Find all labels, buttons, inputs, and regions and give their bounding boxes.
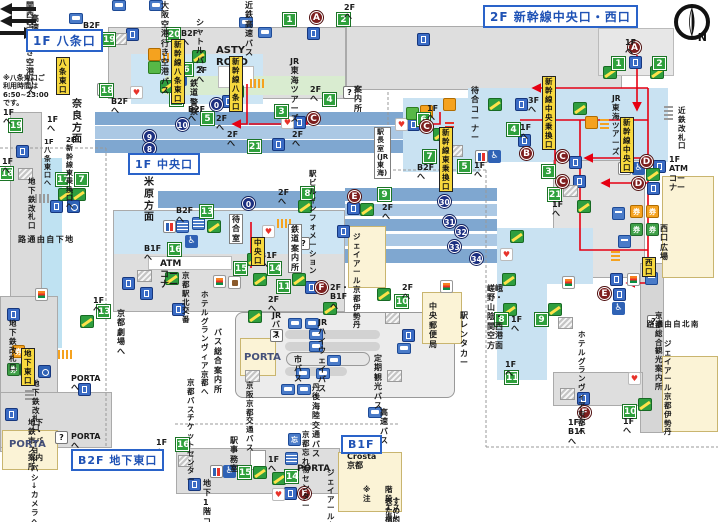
section-title: B1F xyxy=(341,435,382,454)
ticket-o-icon: 券 xyxy=(630,205,643,218)
stair-number-badge: 5 xyxy=(458,160,471,173)
map-label: 1Fへ xyxy=(623,417,634,436)
elevator-letter-badge: D xyxy=(640,155,653,168)
elev-icon xyxy=(347,202,360,215)
map-label: 1Fへ xyxy=(625,38,636,57)
wheelchair-icon: ♿ xyxy=(185,235,198,248)
cafe-icon xyxy=(228,276,241,289)
elevator-letter-badge: C xyxy=(556,175,569,188)
esc-icon xyxy=(248,310,262,323)
stair-number-badge: 18 xyxy=(100,84,113,97)
esc-icon xyxy=(510,230,524,243)
gate-ticks xyxy=(58,350,72,359)
map-label: B2Fへ xyxy=(111,97,128,116)
stair-number-badge: 9 xyxy=(378,188,391,201)
map-label: 駅事務室 xyxy=(230,436,238,474)
map-label: 1Fへ xyxy=(427,104,438,123)
stair-number-badge: 19 xyxy=(102,33,115,46)
stairs-icon xyxy=(558,317,573,329)
stair-number-badge: 1 xyxy=(612,57,625,70)
map-label: JR 東海 ツアーズ xyxy=(290,57,299,123)
bus-icon xyxy=(288,318,302,329)
elevator-letter-badge: E xyxy=(598,287,611,300)
map-label: 2Fへ xyxy=(278,188,289,207)
section-title: 2F 新幹線中央口・西口 xyxy=(483,5,638,28)
gate-ticks xyxy=(664,106,673,120)
stair-number-badge: 4 xyxy=(507,123,520,136)
map-label: 2Fへ xyxy=(216,114,227,133)
bus-icon xyxy=(297,384,311,395)
stair-number-badge: 3 xyxy=(542,165,555,178)
map-label: PORTA xyxy=(9,439,46,451)
bus-icon xyxy=(69,13,83,24)
ticket-g-icon: 券 xyxy=(646,223,659,236)
map-label: ジェイアール 京都伊勢丹 xyxy=(664,340,672,437)
map-label: 1Fへ xyxy=(505,360,516,379)
gate-ticks xyxy=(35,194,49,203)
platform-number-badge: 32 xyxy=(455,225,468,238)
stair-number-badge: 7 xyxy=(423,150,436,163)
elev-icon xyxy=(307,27,320,40)
wheelchair-icon: ♿ xyxy=(612,302,625,315)
elevator-letter-badge: A xyxy=(310,11,323,24)
elevator-letter-badge: D xyxy=(632,177,645,190)
map-label: 地下自由通路 xyxy=(17,235,74,244)
map-label: B2Fへ xyxy=(417,163,434,182)
heart-icon: ♥ xyxy=(500,248,513,261)
wc-icon xyxy=(210,465,223,478)
esc-icon xyxy=(488,98,502,111)
map-label: 3Fへ xyxy=(528,96,539,115)
elev-icon xyxy=(284,487,297,500)
bus-icon xyxy=(258,27,272,38)
elev-icon xyxy=(402,329,415,342)
map-label: 地下鉄 改札口 xyxy=(28,178,36,231)
map-label: 2F・B1Fへ xyxy=(330,283,349,311)
gate-ticks xyxy=(250,79,264,88)
esc-icon xyxy=(253,273,267,286)
elev-icon xyxy=(515,98,528,111)
map-label: 丹後海陸交通バス xyxy=(312,383,320,459)
map-label: 駅レンタカー xyxy=(460,311,468,368)
exit-label: 新幹線 中央口 xyxy=(620,117,634,173)
map-label: 2Fへ xyxy=(344,3,355,22)
stair-number-badge: 2 xyxy=(653,57,666,70)
stairs-icon xyxy=(387,370,402,382)
esc-icon xyxy=(638,398,652,411)
exit-label: 新幹線 東乗換口 xyxy=(439,127,453,192)
map-label: 1Fへ xyxy=(511,315,522,334)
map-label: 1Fへ xyxy=(552,200,563,219)
platform-number-badge: 30 xyxy=(438,195,451,208)
stair-number-badge: 11 xyxy=(277,280,290,293)
elevator-letter-badge: B xyxy=(520,147,533,160)
esc-icon xyxy=(272,472,286,485)
seven-icon xyxy=(440,280,453,293)
kyoto-station-floor-map: ♿♿♿♿♿♿♥♥♥♥♥♥♥?????券券券券券券券忘 1920121817643… xyxy=(0,0,720,522)
map-label: 2Fへ xyxy=(227,130,238,149)
map-label: ※八条東口ご利用時間は 6:50~23:00です。 xyxy=(3,74,49,107)
heart-icon: ♥ xyxy=(628,372,641,385)
exit-label: 八条東口 xyxy=(56,57,70,95)
elev-icon xyxy=(272,138,285,151)
subway-icon xyxy=(38,365,51,378)
stair-number-badge: 9 xyxy=(535,313,548,326)
shop-o-icon xyxy=(585,116,598,129)
map-label: 2Fへ xyxy=(382,203,393,222)
stair-number-badge: 21 xyxy=(248,140,261,153)
exit-label: 新幹線 中央乗換口 xyxy=(542,76,556,150)
map-label: バス総合案内所 xyxy=(214,328,222,394)
map-shape xyxy=(422,292,462,344)
map-shape xyxy=(285,330,380,339)
stair-number-badge: 1 xyxy=(283,13,296,26)
map-label: 1Fへ xyxy=(93,296,104,315)
elev-icon xyxy=(126,28,139,41)
stair-number-badge: 4 xyxy=(323,93,336,106)
esc-icon xyxy=(377,288,391,301)
map-label: Crosta 京都 xyxy=(347,452,376,471)
map-label: 2Fへ xyxy=(310,85,321,104)
map-label: B2Fへ xyxy=(176,206,193,225)
map-label: 2Fへ xyxy=(196,66,207,85)
lost-icon: 忘 xyxy=(288,433,301,446)
map-label: 1Fへ xyxy=(47,115,58,134)
exit-label: 新幹線 八条口 xyxy=(229,56,243,112)
map-label: 1F 八条 東口へ xyxy=(44,138,54,188)
map-label: 1Fへ xyxy=(268,455,279,474)
machine-icon xyxy=(618,235,631,248)
wheelchair-glyph: ♿ xyxy=(612,302,625,314)
bus-icon xyxy=(397,343,411,354)
compass-north-icon: N xyxy=(672,2,712,46)
wheelchair-icon: ♿ xyxy=(488,150,501,163)
exit-label: 新幹線 八条東口 xyxy=(171,39,185,104)
elev-icon xyxy=(629,56,642,69)
platform-number-badge: 31 xyxy=(443,215,456,228)
map-label: PORTA xyxy=(244,352,281,364)
map-label: 京都バス チケット センター xyxy=(187,379,195,485)
map-label: PORTA xyxy=(297,464,330,475)
ticket-o-icon: 券 xyxy=(646,205,659,218)
map-label: 近鉄 改札口 xyxy=(678,107,686,151)
stair-number-badge: 15 xyxy=(238,466,251,479)
stair-number-badge: 13 xyxy=(200,205,213,218)
map-label: B1Fへ xyxy=(144,244,161,263)
esc-icon xyxy=(292,273,306,286)
stairs-icon xyxy=(385,312,400,324)
shop-o-icon xyxy=(148,48,161,61)
map-label: 待合コーナー xyxy=(471,86,479,143)
stair-number-badge: 7 xyxy=(75,173,88,186)
map-label: JRバス xyxy=(272,311,281,339)
seven-icon xyxy=(213,275,226,288)
map-label: 駅ビル インフォ メーション xyxy=(309,170,317,276)
platform-number-badge: 0 xyxy=(210,98,223,111)
wc-icon xyxy=(163,220,176,233)
elevator-letter-badge: E xyxy=(348,190,361,203)
stairs-icon xyxy=(137,270,152,282)
map-label: ジェイ アール 京都 伊勢丹 xyxy=(353,233,361,330)
esc-icon xyxy=(577,200,591,213)
map-label: 京都駅 北交番 xyxy=(182,272,190,325)
heart-icon: ♥ xyxy=(272,488,285,501)
seven-icon xyxy=(35,288,48,301)
platform-number-badge: 0 xyxy=(242,197,255,210)
section-title: 1F 八条口 xyxy=(26,29,103,52)
ticket-g-glyph: 券 xyxy=(647,224,658,236)
map-label: 2Fへ xyxy=(402,283,413,302)
shop-g-icon xyxy=(148,61,161,74)
esc-icon xyxy=(646,168,660,181)
ticket-g-icon: 券 xyxy=(630,223,643,236)
map-shape xyxy=(345,188,497,201)
map-shape xyxy=(285,342,380,351)
stair-number-badge: 16 xyxy=(168,243,181,256)
map-label: 定期観光バス xyxy=(374,354,382,411)
map-label: 市バス xyxy=(294,355,302,383)
ticket-o-glyph: 券 xyxy=(631,206,642,218)
map-label: 京都劇場へ xyxy=(117,309,125,356)
shop-o-icon xyxy=(443,98,456,111)
heart-glyph: ♥ xyxy=(131,87,142,99)
map-label: 1Fへ xyxy=(3,108,14,127)
bus-icon xyxy=(112,0,126,11)
compass-label: N xyxy=(698,31,707,44)
stair-number-badge: 3 xyxy=(275,105,288,118)
elev-icon xyxy=(140,287,153,300)
info-glyph: ? xyxy=(56,432,67,444)
section-title: B2F 地下東口 xyxy=(71,449,164,471)
esc-icon xyxy=(360,203,374,216)
esc-icon xyxy=(207,220,221,233)
map-label: 地下1階コンコース xyxy=(203,479,211,522)
map-shape xyxy=(346,26,622,90)
map-label: 米原方面 xyxy=(144,177,154,224)
map-label: 2F 新幹線 東乗換口へ xyxy=(66,136,76,210)
elevator-letter-badge: C xyxy=(556,150,569,163)
elevator-letter-badge: C xyxy=(307,112,320,125)
map-label: 嵯峨野・山陰・ 関西空港方面 xyxy=(487,284,503,350)
heart-glyph: ♥ xyxy=(263,226,274,238)
map-label: ATM コーナー xyxy=(160,259,181,291)
heart-glyph: ♥ xyxy=(629,373,640,385)
map-label: 京阪京都 交通バス xyxy=(246,382,254,453)
map-label: 1Fへ xyxy=(520,123,531,142)
elev-icon xyxy=(16,145,29,158)
elev-icon xyxy=(122,277,135,290)
seven-icon xyxy=(627,273,640,286)
wheelchair-glyph: ♿ xyxy=(185,235,198,247)
elevator-letter-badge: F xyxy=(315,281,328,294)
wheelchair-glyph: ♿ xyxy=(488,150,501,162)
esc-icon xyxy=(253,466,267,479)
map-label: 1F・B1Fへ xyxy=(568,418,587,446)
machine-icon xyxy=(612,207,625,220)
map-label: 1Fへ xyxy=(474,161,485,180)
seven-icon xyxy=(562,276,575,289)
map-label: B2Fへ xyxy=(188,105,205,124)
ticket-o-glyph: 券 xyxy=(647,206,658,218)
elev-icon xyxy=(613,288,626,301)
elev-icon xyxy=(50,200,63,213)
map-label: 南北自由通路 xyxy=(645,320,698,329)
map-label: 2Fへ xyxy=(268,295,279,314)
map-label: 案内所 xyxy=(354,85,362,113)
heart-icon: ♥ xyxy=(395,118,408,131)
map-label: 待合室 xyxy=(229,214,243,244)
heart-glyph: ♥ xyxy=(273,489,284,501)
map-label: ジェイアール 京都伊勢丹 xyxy=(327,469,335,522)
exit-label: 地下東口 xyxy=(21,348,35,386)
map-label: 西口広場 xyxy=(660,224,668,262)
section-title: 1F 中央口 xyxy=(128,153,200,175)
map-label: 1Fへ xyxy=(2,157,13,176)
gate-ticks xyxy=(611,251,620,261)
lost-glyph: 忘 xyxy=(289,434,300,446)
ticket-g-glyph: 券 xyxy=(631,224,642,236)
stairs-icon xyxy=(560,388,575,400)
esc-icon xyxy=(548,303,562,316)
info-icon: ? xyxy=(55,431,68,444)
platform-number-badge: 33 xyxy=(448,240,461,253)
bus-icon xyxy=(281,384,295,395)
heart-icon: ♥ xyxy=(130,86,143,99)
map-label: 中央 郵便局 xyxy=(429,302,437,349)
elev-icon xyxy=(610,273,623,286)
map-label: PORTAへ xyxy=(71,374,101,393)
elev-icon xyxy=(569,156,582,169)
exit-label: 中央口 xyxy=(251,237,265,266)
stair-number-badge: 15 xyxy=(234,262,247,275)
elev-icon xyxy=(337,225,350,238)
map-label: 大阪空港行き空港バス xyxy=(161,1,169,95)
bus-icon xyxy=(327,355,341,366)
map-label: ※注 xyxy=(363,486,371,504)
map-label: 表すため構内図のみに付与したものです。駅では掲出しておりませんのでご注意ください… xyxy=(385,498,400,522)
map-label: 2Fへ xyxy=(292,130,303,149)
esc-icon xyxy=(80,315,94,328)
platform-number-badge: 34 xyxy=(470,252,483,265)
elev-icon xyxy=(5,408,18,421)
exit-label: 西口 xyxy=(642,257,656,277)
map-label: 鉄道案内所 xyxy=(288,224,302,273)
gate-ticks xyxy=(600,119,609,129)
esc-icon xyxy=(502,273,516,286)
map-label: 駅長室 (JR東海) xyxy=(374,127,391,179)
heart-glyph: ♥ xyxy=(396,119,407,131)
map-label: ホテル グランヴィア 京都へ xyxy=(201,291,209,397)
map-label: ヨドバシ ↓カメラへ xyxy=(31,447,39,522)
heart-glyph: ♥ xyxy=(501,249,512,261)
esc-icon xyxy=(573,102,587,115)
elev-icon xyxy=(417,33,430,46)
bus-icon xyxy=(305,318,319,329)
elev-icon xyxy=(647,182,660,195)
map-label: 地下鉄 改札口 xyxy=(9,320,17,373)
map-label: 1F ATM コーナー xyxy=(669,155,688,193)
